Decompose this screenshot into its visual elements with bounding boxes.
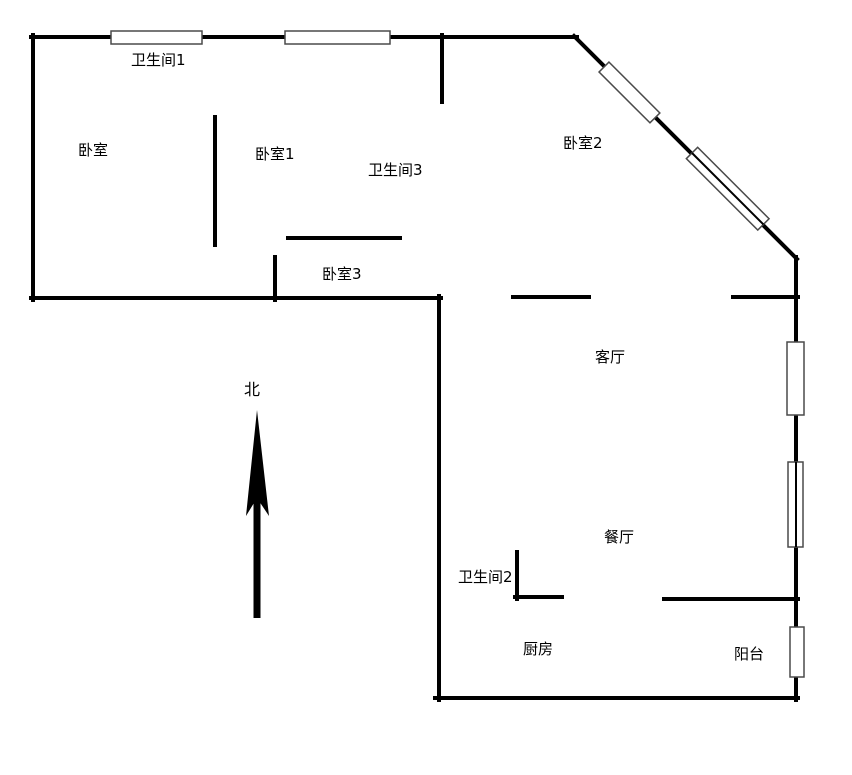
room-label-living-room: 客厅 <box>595 349 625 366</box>
room-label-bedroom-1: 卧室1 <box>255 146 295 163</box>
north-arrow-icon <box>246 410 269 618</box>
room-label-bathroom-2: 卫生间2 <box>458 569 513 586</box>
room-label-dining-room: 餐厅 <box>604 529 634 546</box>
north-arrow-shaft <box>254 497 261 618</box>
room-label-bathroom-1: 卫生间1 <box>131 52 186 69</box>
window-right-2 <box>788 462 803 547</box>
window-top-2 <box>285 31 390 44</box>
window-right-1 <box>787 342 804 415</box>
room-label-bathroom-3: 卫生间3 <box>368 162 423 179</box>
room-label-bedroom: 卧室 <box>78 142 108 159</box>
north-label: 北 <box>244 381 260 399</box>
room-label-balcony: 阳台 <box>734 646 764 663</box>
room-label-kitchen: 厨房 <box>523 641 553 658</box>
window-right-3 <box>790 627 804 677</box>
window-diagonal-2 <box>686 147 769 230</box>
room-label-bedroom-2: 卧室2 <box>563 135 603 152</box>
interior-walls <box>215 35 798 599</box>
window-top-1 <box>111 31 202 44</box>
floor-plan-drawing <box>0 0 852 775</box>
floor-plan: 卫生间1 卧室 卧室1 卫生间3 卧室2 卧室3 客厅 餐厅 卫生间2 厨房 阳… <box>0 0 852 775</box>
room-label-bedroom-3: 卧室3 <box>322 266 362 283</box>
window-diagonal-1 <box>599 62 660 123</box>
